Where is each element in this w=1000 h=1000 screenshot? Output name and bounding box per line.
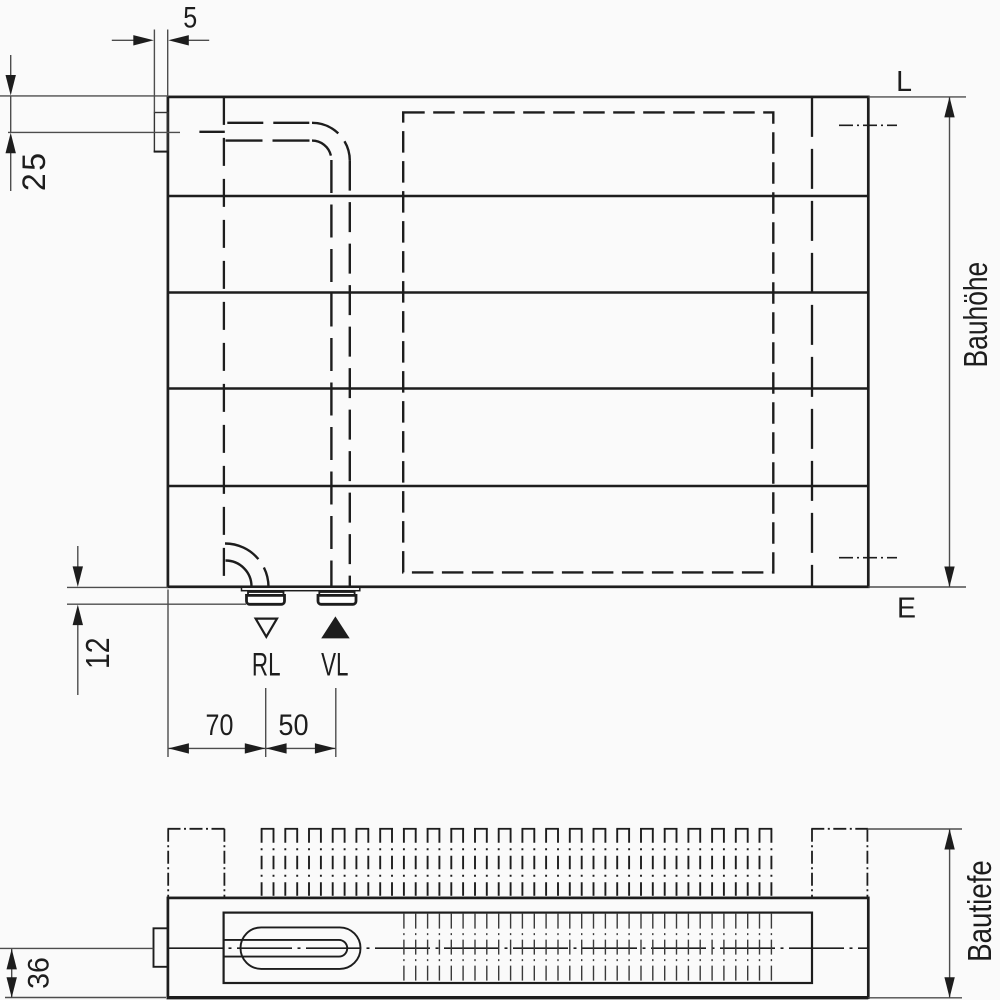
svg-text:70: 70 [206,708,234,741]
svg-text:RL: RL [252,647,281,683]
svg-text:L: L [896,66,912,98]
svg-text:12: 12 [79,637,117,669]
svg-text:E: E [897,593,916,625]
svg-text:5: 5 [183,1,197,34]
svg-text:50: 50 [278,709,308,742]
svg-text:Bautiefe: Bautiefe [962,860,999,962]
svg-text:25: 25 [16,151,52,192]
svg-text:36: 36 [23,957,56,989]
svg-text:Bauhöhe: Bauhöhe [958,262,994,368]
svg-text:VL: VL [321,647,348,683]
